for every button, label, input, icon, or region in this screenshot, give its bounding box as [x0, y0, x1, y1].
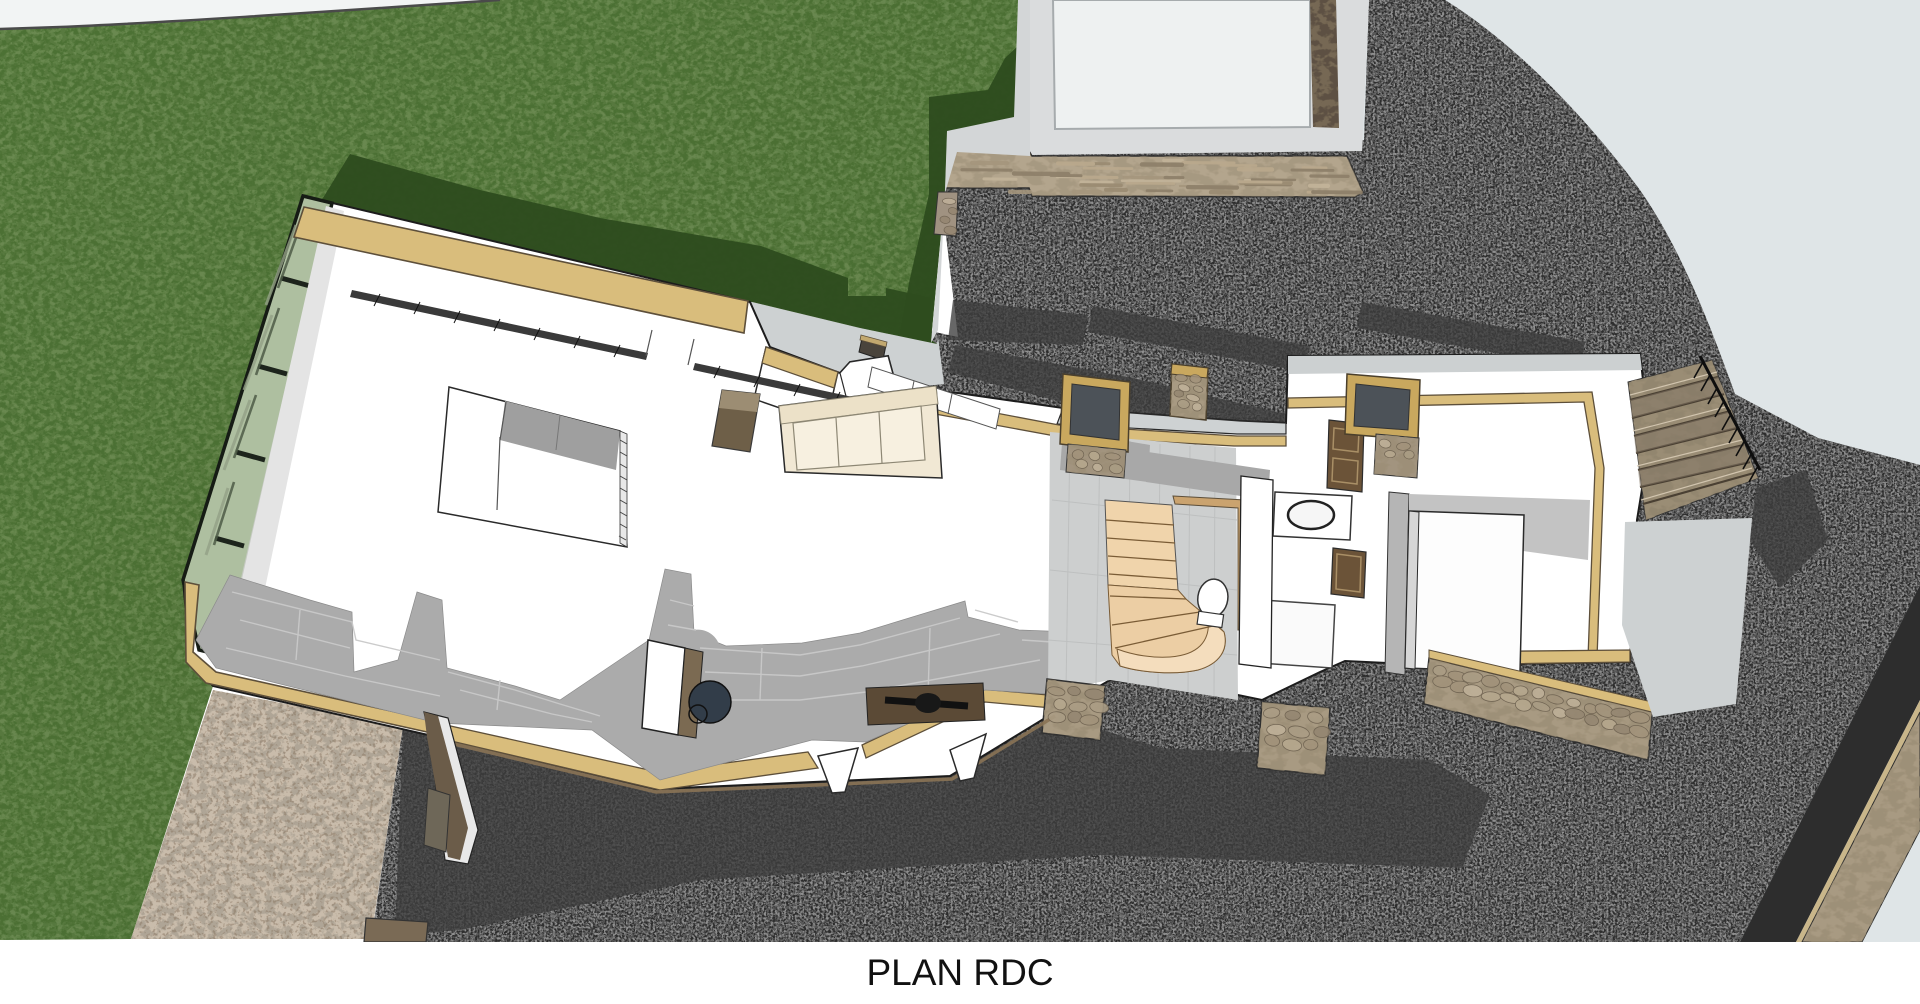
svg-text:PLAN RDC: PLAN RDC	[866, 952, 1053, 993]
